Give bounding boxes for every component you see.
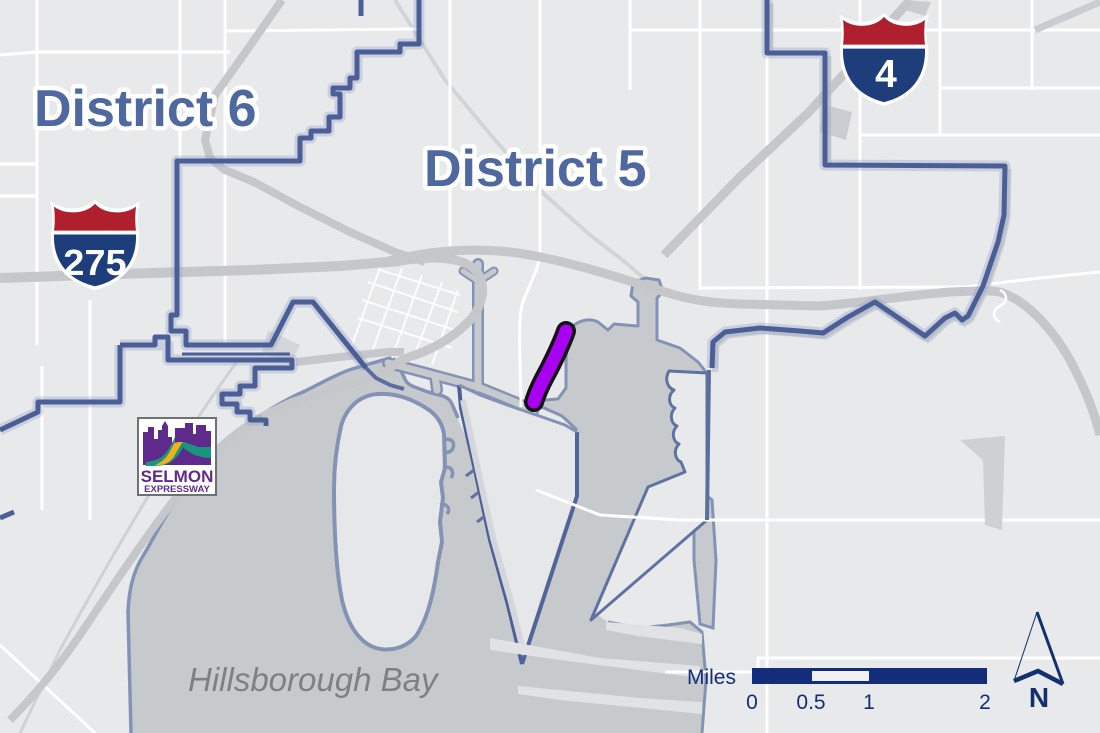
svg-text:2: 2: [979, 691, 991, 714]
svg-text:Hillsborough Bay: Hillsborough Bay: [188, 661, 440, 698]
svg-text:275: 275: [63, 241, 126, 282]
svg-text:N: N: [1029, 682, 1049, 713]
svg-text:EXPRESSWAY: EXPRESSWAY: [144, 484, 210, 495]
svg-text:0.5: 0.5: [796, 691, 825, 714]
svg-text:0: 0: [746, 691, 758, 714]
svg-text:4: 4: [875, 53, 897, 96]
svg-text:District 5: District 5: [424, 140, 647, 198]
svg-text:Miles: Miles: [687, 666, 736, 689]
svg-text:1: 1: [863, 691, 875, 714]
svg-text:District 6: District 6: [34, 80, 257, 138]
